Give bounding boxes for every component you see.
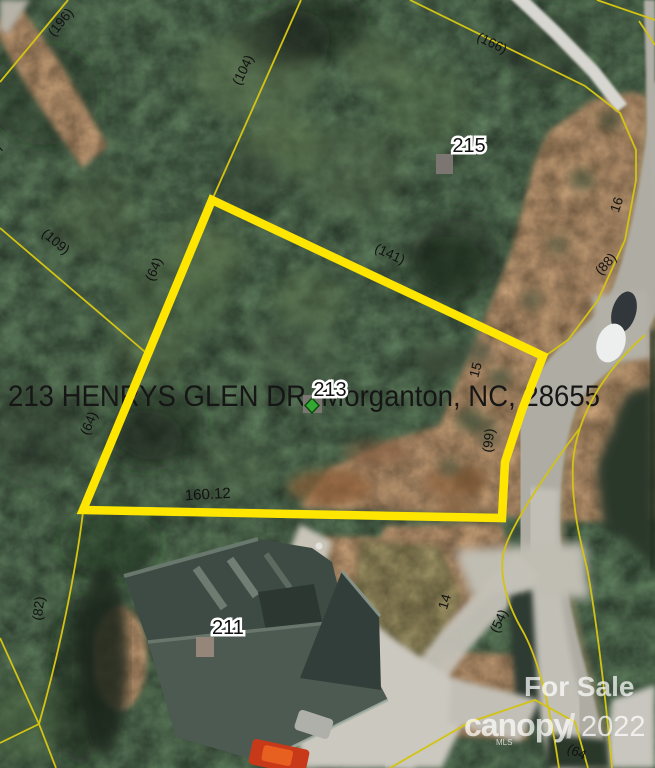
- svg-text:For Sale: For Sale: [524, 671, 634, 702]
- svg-text:(99): (99): [480, 428, 498, 454]
- svg-text:/: /: [566, 708, 576, 746]
- svg-text:215: 215: [452, 135, 485, 157]
- svg-text:160.12: 160.12: [184, 485, 231, 504]
- svg-text:canopy: canopy: [464, 707, 571, 743]
- svg-text:211: 211: [212, 617, 244, 639]
- svg-text:213: 213: [313, 379, 346, 401]
- svg-text:(82): (82): [30, 596, 48, 622]
- svg-text:2022: 2022: [581, 711, 646, 743]
- svg-text:MLS: MLS: [496, 738, 512, 747]
